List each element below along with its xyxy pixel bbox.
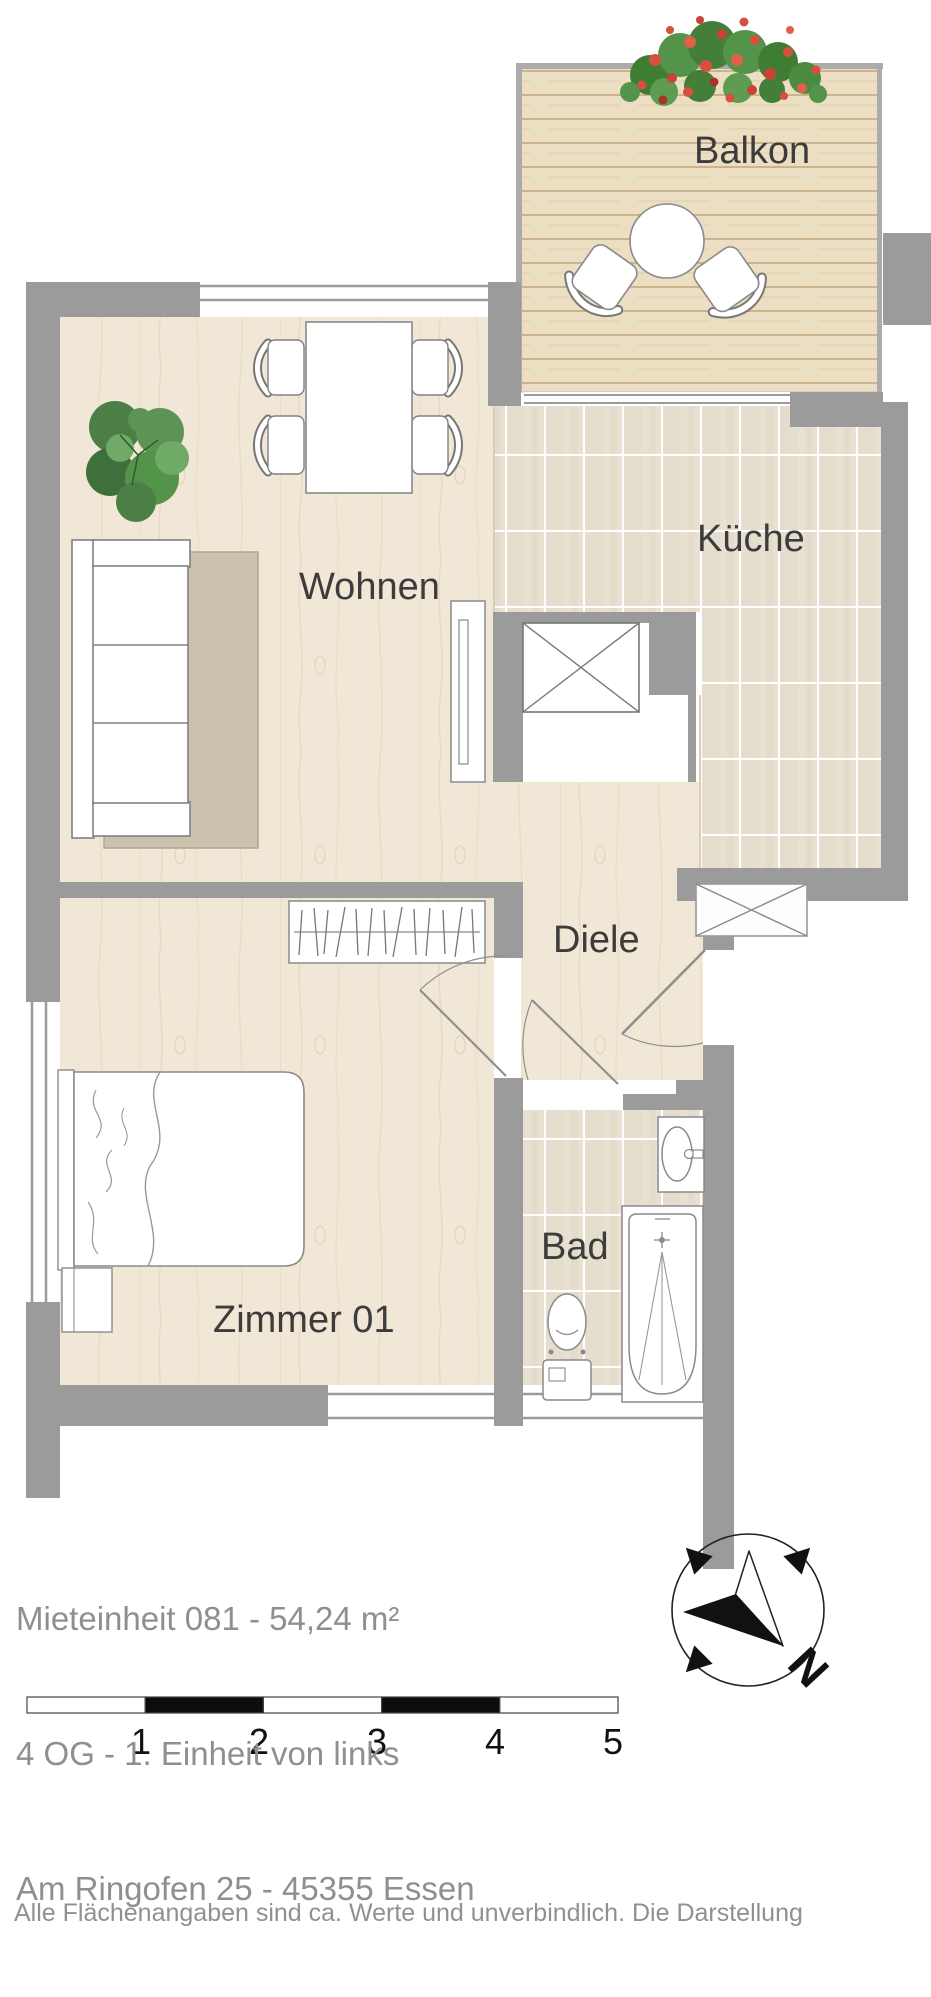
sofa bbox=[72, 540, 190, 838]
wardrobe bbox=[289, 901, 485, 963]
wall-living-bedroom bbox=[56, 882, 494, 898]
wall-entrance-upper bbox=[703, 936, 734, 950]
wall-balcony-bottom-right bbox=[790, 392, 883, 427]
balcony bbox=[516, 16, 883, 392]
wall-hall-bedroom-upper bbox=[494, 882, 523, 958]
wall-top-solid bbox=[26, 282, 200, 317]
kitchen-shaft-box bbox=[696, 884, 807, 936]
wall-entrance-lower bbox=[703, 1045, 734, 1080]
room-label-zimmer01: Zimmer 01 bbox=[213, 1299, 395, 1341]
wall-stub-bottom-right bbox=[703, 1401, 734, 1569]
scale-label-5: 5 bbox=[603, 1721, 623, 1762]
balcony-rail-right bbox=[877, 63, 882, 392]
sink bbox=[658, 1117, 704, 1192]
wall-balcony-left-pier bbox=[488, 282, 521, 406]
window-balcony-door bbox=[524, 392, 790, 406]
wall-hall-bedroom-lower bbox=[494, 1078, 523, 1426]
scale-label-4: 4 bbox=[485, 1721, 505, 1762]
room-label-bad: Bad bbox=[541, 1226, 609, 1268]
wall-kitchen-right bbox=[881, 402, 908, 901]
unit-info-line-1: Mieteinheit 081 - 54,24 m² bbox=[16, 1596, 475, 1641]
balcony-table bbox=[630, 204, 704, 278]
disclaimer-line-1: Alle Flächenangaben sind ca. Werte und u… bbox=[14, 1894, 803, 1933]
radiator-living bbox=[451, 601, 485, 782]
dining-table bbox=[306, 322, 412, 493]
wall-shaft-left bbox=[493, 612, 523, 782]
wall-shaft-right-upper bbox=[649, 612, 696, 695]
shaft-box bbox=[523, 623, 639, 712]
wall-left-exterior bbox=[26, 282, 60, 1498]
scale-segment-5 bbox=[500, 1697, 618, 1713]
bed bbox=[58, 1070, 304, 1270]
window-living-top bbox=[200, 282, 488, 317]
north-label: N bbox=[778, 1637, 839, 1697]
disclaimer: Alle Flächenangaben sind ca. Werte und u… bbox=[14, 1817, 803, 1997]
wall-bedroom-bottom bbox=[56, 1385, 328, 1426]
passage-floor bbox=[493, 782, 703, 882]
compass-rose: N bbox=[672, 1534, 839, 1697]
bedroom-bench bbox=[62, 1268, 112, 1332]
room-label-balkon: Balkon bbox=[694, 130, 810, 172]
window-bedroom-left bbox=[26, 1002, 60, 1302]
room-label-wohnen: Wohnen bbox=[299, 566, 440, 608]
wall-shaft-right-lower bbox=[688, 695, 696, 782]
room-label-kueche: Küche bbox=[697, 518, 805, 560]
unit-info-line-2: 4 OG - 1. Einheit von links bbox=[16, 1731, 475, 1776]
wall-bath-right bbox=[703, 1080, 734, 1401]
room-label-diele: Diele bbox=[553, 919, 640, 961]
floor-plan-page: Balkon Wohnen Küche Diele Bad Zimmer 01 … bbox=[0, 0, 931, 1997]
bathtub bbox=[622, 1206, 703, 1402]
wall-neighbor-top-right bbox=[883, 233, 931, 325]
window-bedroom-bottom bbox=[328, 1385, 494, 1426]
wall-bath-top-a bbox=[623, 1094, 676, 1110]
